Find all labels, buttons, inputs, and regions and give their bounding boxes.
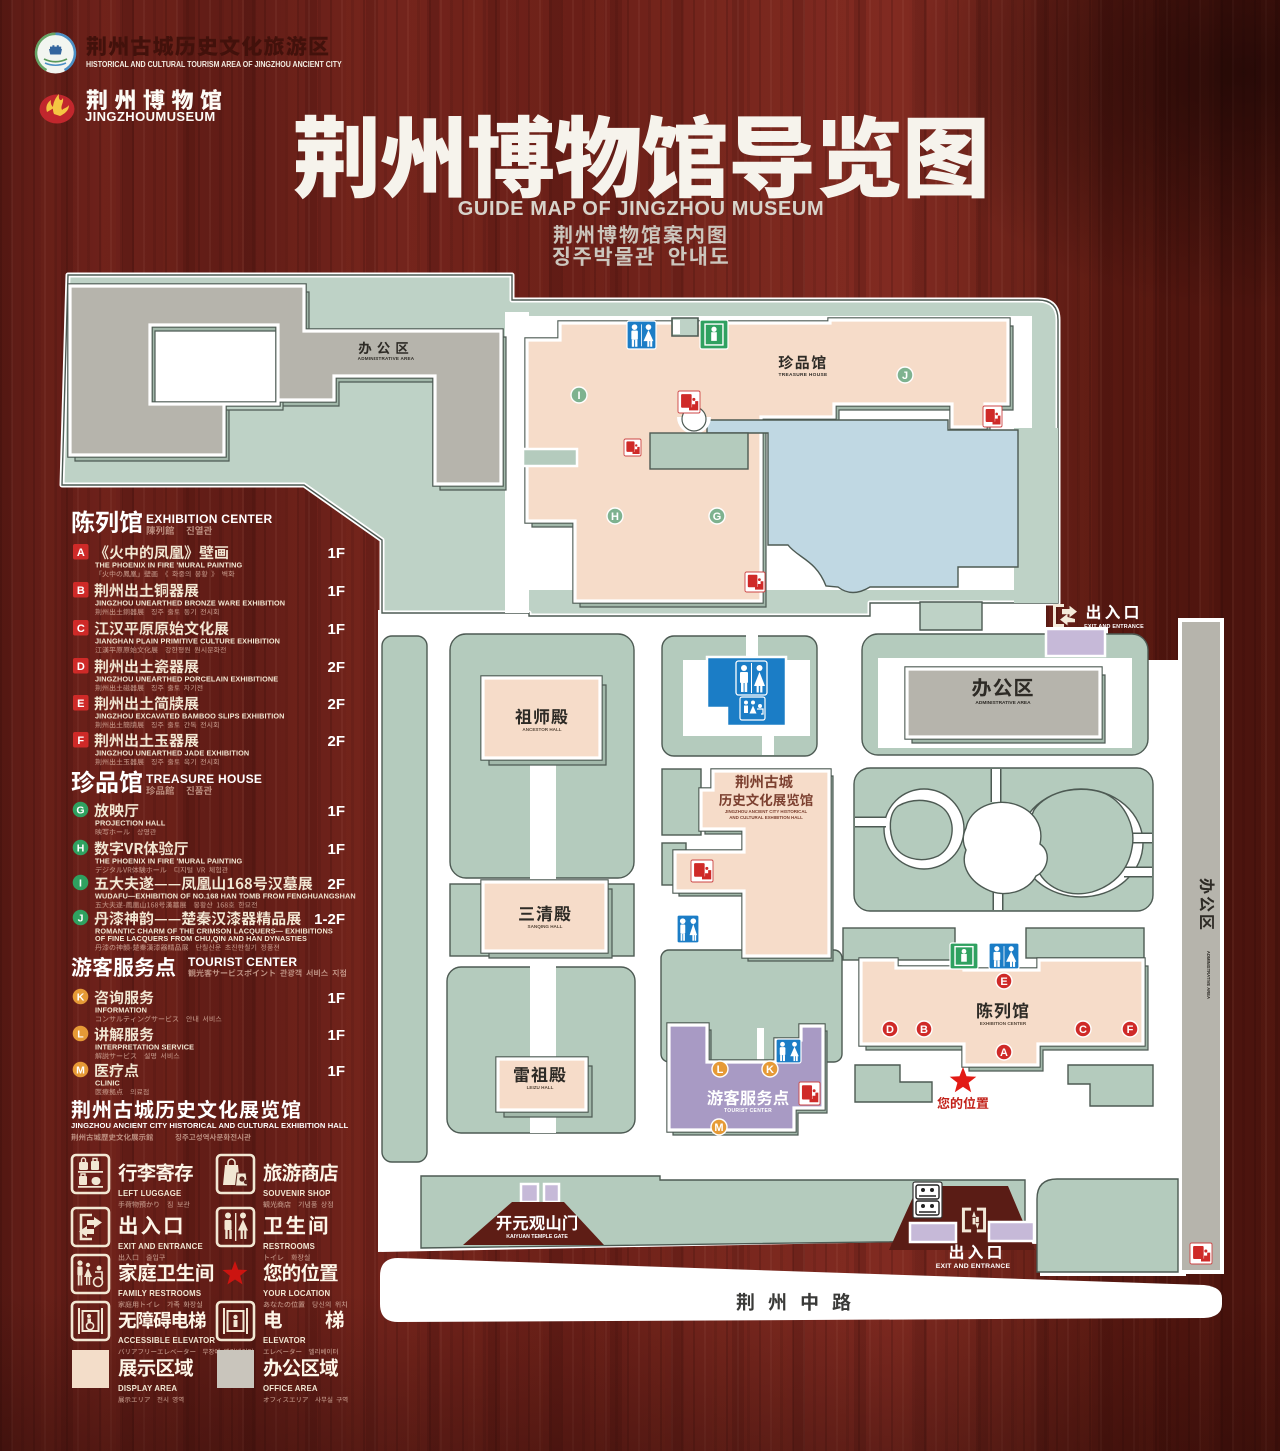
svg-text:ADMINISTRATIVE AREA: ADMINISTRATIVE AREA — [1206, 951, 1211, 999]
svg-text:JINGZHOU UNEARTHED JADE EXHIBI: JINGZHOU UNEARTHED JADE EXHIBITION — [95, 749, 249, 758]
svg-text:TREASURE HOUSE: TREASURE HOUSE — [146, 772, 262, 786]
svg-text:DISPLAY AREA: DISPLAY AREA — [118, 1384, 177, 1393]
svg-text:HISTORICAL AND CULTURAL TOURIS: HISTORICAL AND CULTURAL TOURISM AREA OF … — [86, 59, 342, 69]
svg-text:OF FINE LACQUERS FROM CHU,QIN: OF FINE LACQUERS FROM CHU,QIN AND HAN DY… — [95, 934, 307, 943]
svg-text:LEFT LUGGAGE: LEFT LUGGAGE — [118, 1189, 182, 1198]
svg-text:E: E — [77, 698, 84, 710]
svg-text:1F: 1F — [327, 1027, 345, 1044]
svg-text:G: G — [713, 511, 722, 523]
svg-text:1F: 1F — [327, 621, 345, 638]
svg-text:A: A — [1000, 1047, 1008, 1059]
svg-text:ADMINISTRATIVE AREA: ADMINISTRATIVE AREA — [358, 356, 415, 361]
svg-text:ELEVATOR: ELEVATOR — [263, 1336, 306, 1345]
svg-text:B: B — [77, 585, 85, 597]
svg-text:H: H — [77, 842, 85, 854]
svg-text:D: D — [886, 1024, 894, 1036]
svg-text:AND CULTURAL EXHIBITION HALL: AND CULTURAL EXHIBITION HALL — [729, 815, 803, 820]
svg-text:EXIT AND ENTRANCE: EXIT AND ENTRANCE — [936, 1263, 1011, 1270]
svg-text:INTERPRETATION SERVICE: INTERPRETATION SERVICE — [95, 1043, 194, 1052]
svg-text:2F: 2F — [327, 876, 345, 893]
svg-text:K: K — [77, 991, 85, 1003]
svg-text:ACCESSIBLE ELEVATOR: ACCESSIBLE ELEVATOR — [118, 1336, 215, 1345]
svg-text:TREASURE HOUSE: TREASURE HOUSE — [779, 372, 828, 378]
svg-text:1F: 1F — [327, 1063, 345, 1080]
svg-text:EXHIBITION CENTER: EXHIBITION CENTER — [146, 512, 272, 526]
svg-text:A: A — [77, 547, 85, 559]
svg-text:JIANGHAN PLAIN PRIMITIVE CULTU: JIANGHAN PLAIN PRIMITIVE CULTURE EXHIBIT… — [95, 637, 280, 646]
svg-text:E: E — [1000, 976, 1007, 988]
svg-text:SANQING HALL: SANQING HALL — [528, 924, 563, 929]
svg-text:I: I — [577, 390, 580, 402]
svg-text:JINGZHOUMUSEUM: JINGZHOUMUSEUM — [85, 109, 216, 124]
svg-text:THE PHOENIX IN FIRE 'MURAL PAI: THE PHOENIX IN FIRE 'MURAL PAINTING — [95, 857, 242, 866]
svg-text:2F: 2F — [327, 696, 345, 713]
svg-text:J: J — [78, 912, 84, 924]
svg-text:ANCESTOR HALL: ANCESTOR HALL — [522, 727, 561, 732]
svg-text:CLINIC: CLINIC — [95, 1079, 121, 1088]
svg-text:WUDAFU—EXHIBITION OF NO.168 HA: WUDAFU—EXHIBITION OF NO.168 HAN TOMB FRO… — [95, 892, 356, 901]
svg-text:2F: 2F — [327, 733, 345, 750]
svg-text:JINGZHOU ANCIENT CITY HISTORIC: JINGZHOU ANCIENT CITY HISTORICAL — [725, 809, 808, 814]
svg-text:1F: 1F — [327, 990, 345, 1007]
svg-text:EXIT AND ENTRANCE: EXIT AND ENTRANCE — [118, 1242, 203, 1251]
svg-text:THE PHOENIX IN FIRE 'MURAL PAI: THE PHOENIX IN FIRE 'MURAL PAINTING — [95, 561, 242, 570]
svg-text:1F: 1F — [327, 841, 345, 858]
svg-text:L: L — [717, 1064, 724, 1076]
svg-text:JINGZHOU UNEARTHED BRONZE WARE: JINGZHOU UNEARTHED BRONZE WARE EXHIBITIO… — [95, 599, 285, 608]
svg-text:EXHIBITION CENTER: EXHIBITION CENTER — [980, 1021, 1027, 1026]
svg-text:LEIZU HALL: LEIZU HALL — [527, 1085, 554, 1090]
svg-text:JINGZHOU ANCIENT CITY HISTORIC: JINGZHOU ANCIENT CITY HISTORICAL AND CUL… — [71, 1121, 349, 1130]
svg-text:FAMILY RESTROOMS: FAMILY RESTROOMS — [118, 1289, 202, 1298]
svg-text:RESTROOMS: RESTROOMS — [263, 1242, 315, 1251]
svg-text:M: M — [76, 1064, 85, 1076]
svg-text:J: J — [902, 370, 908, 382]
svg-text:KAIYUAN TEMPLE GATE: KAIYUAN TEMPLE GATE — [506, 1234, 568, 1240]
svg-text:1F: 1F — [327, 803, 345, 820]
svg-text:G: G — [76, 804, 84, 816]
svg-text:TOURIST CENTER: TOURIST CENTER — [188, 955, 297, 969]
svg-text:F: F — [77, 735, 84, 747]
svg-text:K: K — [766, 1064, 774, 1076]
svg-text:1F: 1F — [327, 545, 345, 562]
svg-text:1-2F: 1-2F — [314, 911, 345, 928]
svg-text:L: L — [77, 1028, 84, 1040]
svg-text:D: D — [77, 661, 85, 673]
svg-text:TOURIST CENTER: TOURIST CENTER — [724, 1108, 772, 1114]
svg-text:JINGZHOU EXCAVATED BAMBOO SLIP: JINGZHOU EXCAVATED BAMBOO SLIPS EXHIBITI… — [95, 712, 284, 721]
svg-text:B: B — [920, 1024, 928, 1036]
svg-text:YOUR LOCATION: YOUR LOCATION — [263, 1289, 330, 1298]
svg-text:I: I — [79, 877, 82, 889]
svg-text:M: M — [714, 1122, 723, 1134]
svg-text:ADMINISTRATIVE AREA: ADMINISTRATIVE AREA — [975, 700, 1031, 706]
svg-text:EXIT AND ENTRANCE: EXIT AND ENTRANCE — [1084, 624, 1144, 630]
svg-text:GUIDE MAP OF JINGZHOU MUSEUM: GUIDE MAP OF JINGZHOU MUSEUM — [458, 198, 824, 220]
svg-text:PROJECTION HALL: PROJECTION HALL — [95, 819, 166, 828]
svg-text:2F: 2F — [327, 659, 345, 676]
svg-text:F: F — [1127, 1024, 1134, 1036]
svg-text:1F: 1F — [327, 583, 345, 600]
svg-text:H: H — [611, 511, 619, 523]
svg-text:C: C — [1079, 1024, 1087, 1036]
svg-text:JINGZHOU UNEARTHED PORCELAIN E: JINGZHOU UNEARTHED PORCELAIN EXHIBITIONE — [95, 675, 278, 684]
svg-text:INFORMATION: INFORMATION — [95, 1006, 147, 1015]
svg-text:C: C — [77, 623, 85, 635]
svg-text:OFFICE AREA: OFFICE AREA — [263, 1384, 318, 1393]
svg-text:SOUVENIR SHOP: SOUVENIR SHOP — [263, 1189, 331, 1198]
